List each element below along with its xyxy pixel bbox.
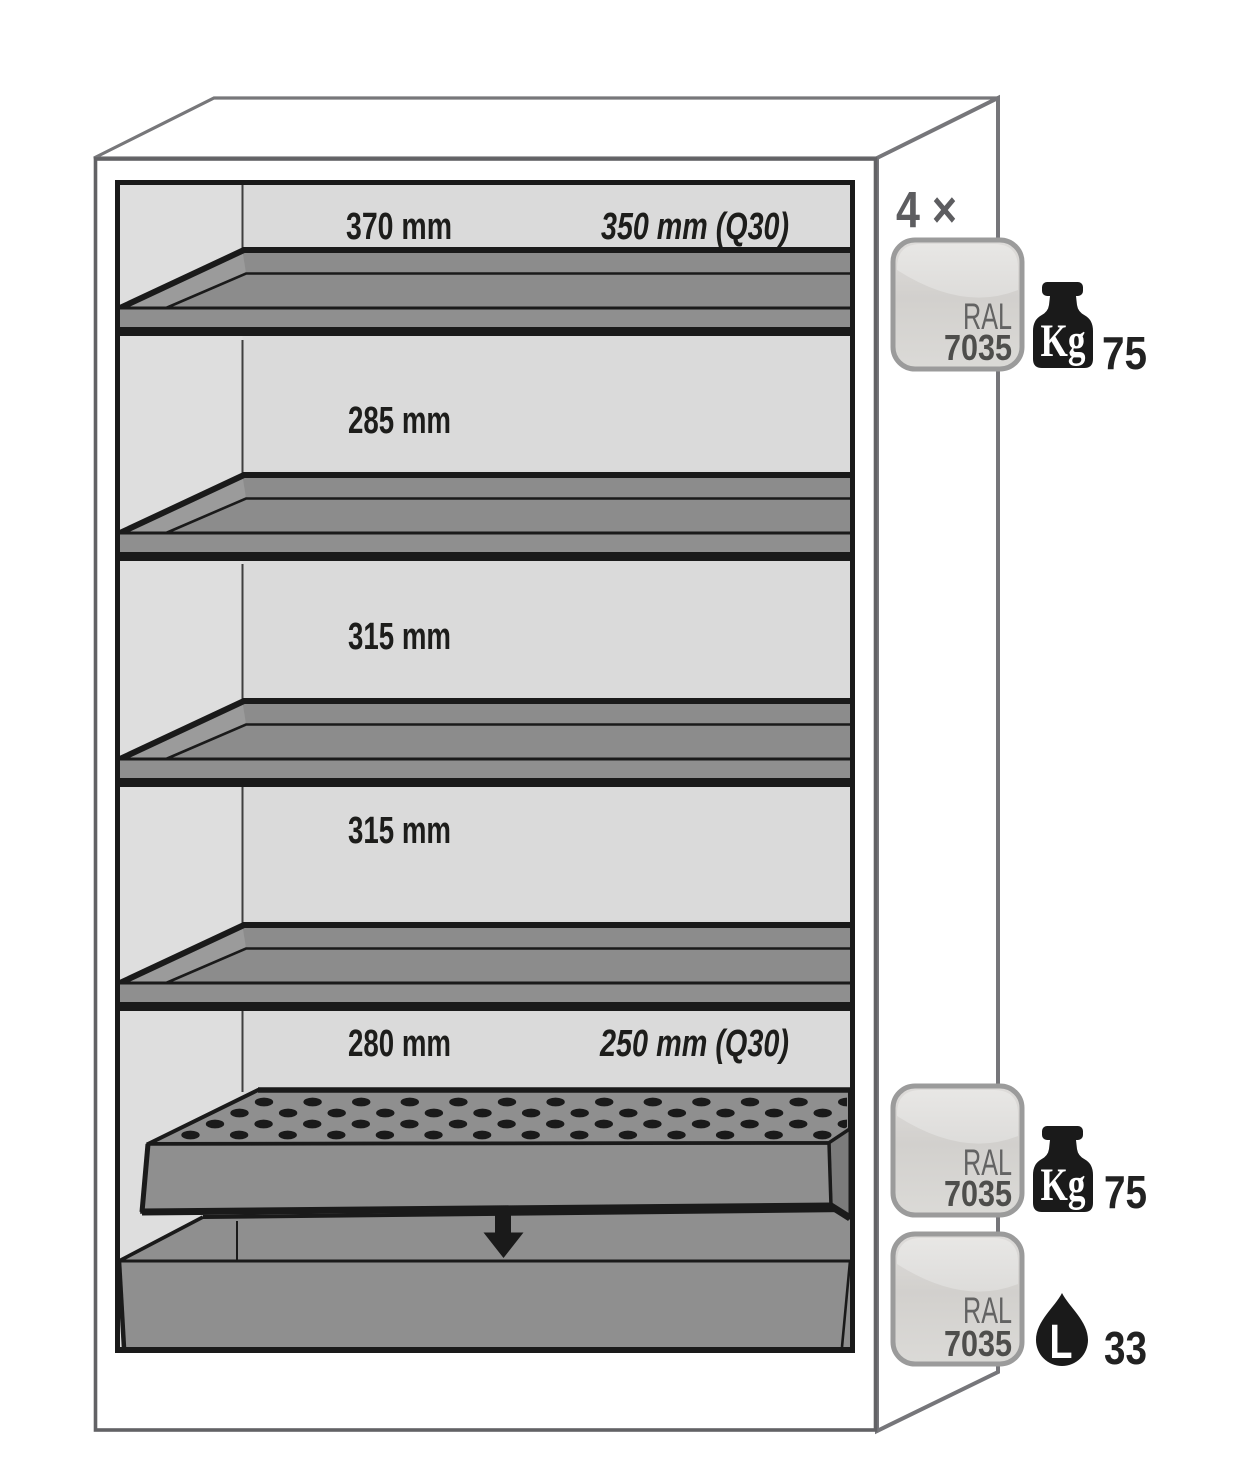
svg-text:7035: 7035 bbox=[944, 1173, 1012, 1214]
svg-text:285 mm: 285 mm bbox=[348, 400, 451, 442]
svg-text:7035: 7035 bbox=[944, 1323, 1012, 1364]
svg-text:Kg: Kg bbox=[1041, 1159, 1086, 1211]
svg-text:33: 33 bbox=[1104, 1322, 1147, 1374]
svg-text:75: 75 bbox=[1102, 327, 1147, 379]
svg-text:370 mm: 370 mm bbox=[346, 206, 452, 248]
svg-text:315 mm: 315 mm bbox=[348, 810, 451, 852]
svg-text:315 mm: 315 mm bbox=[348, 616, 451, 658]
svg-text:250 mm (Q30): 250 mm (Q30) bbox=[599, 1023, 789, 1065]
svg-text:75: 75 bbox=[1104, 1166, 1147, 1218]
svg-text:Kg: Kg bbox=[1041, 315, 1086, 367]
svg-text:280 mm: 280 mm bbox=[348, 1023, 451, 1065]
svg-text:7035: 7035 bbox=[944, 327, 1012, 368]
svg-text:4 ×: 4 × bbox=[896, 181, 957, 238]
svg-text:L: L bbox=[1050, 1316, 1073, 1369]
svg-text:350 mm (Q30): 350 mm (Q30) bbox=[601, 206, 789, 248]
